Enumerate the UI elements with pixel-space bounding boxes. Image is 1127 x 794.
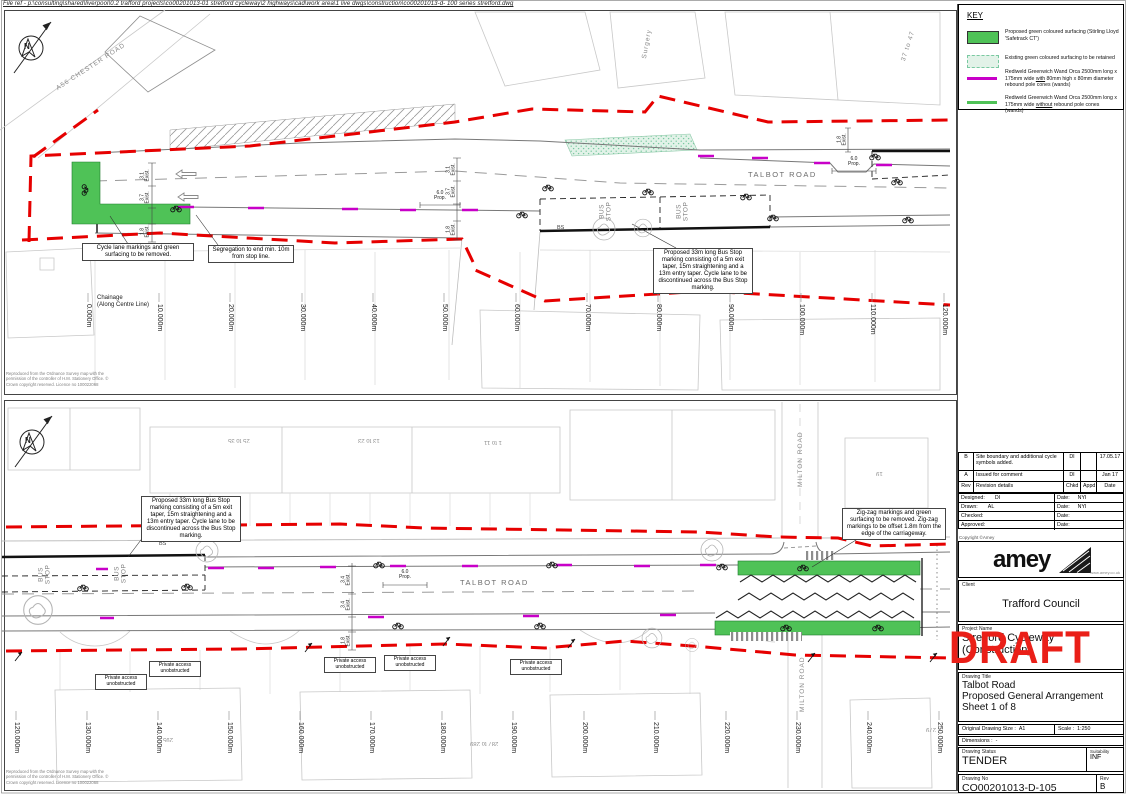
- building-label: 13 to 23: [358, 437, 380, 443]
- chainage-label: 230.000m: [794, 722, 801, 753]
- key-item-label: Existing green coloured surfacing to be …: [1005, 55, 1119, 62]
- road-label-talbot-top: TALBOT ROAD: [748, 170, 817, 179]
- date-value: NYI: [1078, 504, 1087, 510]
- rev-appd: [1081, 471, 1097, 481]
- chainage-label: 0.000m: [85, 304, 92, 327]
- cycle-symbols-top: [82, 154, 913, 223]
- chainage-label: 130.000m: [84, 722, 91, 753]
- rev-id: B: [959, 453, 974, 470]
- key-swatch-existing-green: [967, 55, 999, 68]
- bus-stop-text: BUSSTOP: [114, 558, 129, 588]
- amey-copyright: Copyright ©Amey: [959, 535, 994, 540]
- chainage-label: 250.000m: [936, 722, 943, 753]
- dimensions-row: Dimensions : -: [958, 736, 1124, 746]
- north-arrow-bottom: [15, 416, 52, 467]
- tree: [196, 540, 218, 562]
- rev-details: Issued for comment: [974, 471, 1064, 481]
- panel-top-road-lines: [95, 139, 950, 238]
- building-label: 19: [876, 470, 883, 476]
- key-swatch-wand-with-cones: [967, 77, 997, 80]
- chainage-label: 80.000m: [655, 304, 662, 331]
- road-label-milton-lower: MILTON ROAD: [799, 656, 806, 712]
- bus-stop-text: BUSSTOP: [599, 196, 614, 226]
- rev-details: Site boundary and additional cycle symbo…: [974, 453, 1064, 470]
- chainage-label: 50.000m: [441, 304, 448, 331]
- amey-logo-box: amey www.amey.co.uk: [958, 541, 1124, 578]
- rev-chkd: DI: [1064, 453, 1081, 470]
- rev-appd: [1081, 453, 1097, 470]
- rev-header: Revision details: [974, 482, 1064, 492]
- dimension: 1.8Exist.: [447, 216, 458, 242]
- leader-lines-top: [110, 215, 676, 248]
- key-swatch-wand-without-cones: [967, 101, 997, 104]
- amey-url: www.amey.co.uk: [1090, 570, 1120, 575]
- signoff-table: Designed:DI Date:NYI Drawn:AL Date:NYI C…: [958, 493, 1124, 529]
- chainage-label: 10.000m: [156, 304, 163, 331]
- dimension: 6.0Prop.: [841, 157, 867, 168]
- drawing-title-line1: Talbot Road: [959, 680, 1123, 691]
- designed-value: DI: [995, 495, 1000, 501]
- date-label: Date:: [1057, 504, 1070, 510]
- key-item-label: Proposed green coloured surfacing (Stirl…: [1005, 29, 1119, 42]
- building-label: 287 to 289: [470, 740, 498, 746]
- annotation-private-access: Private access unobstructed: [510, 659, 562, 675]
- os-copyright-bottom: Reproduced from the Ordnance Survey map …: [6, 769, 114, 785]
- dimension: 1.8Exist.: [141, 218, 152, 244]
- drawing-title-box: Drawing Title Talbot Road Proposed Gener…: [958, 672, 1124, 722]
- client-name: Trafford Council: [959, 598, 1123, 610]
- north-letter: N: [24, 42, 30, 51]
- dimension: 3.4Exist.: [342, 591, 353, 617]
- drawing-number-box: Drawing No CO00201013-D-105 Rev B: [958, 774, 1124, 793]
- chainage-label: 60.000m: [513, 304, 520, 331]
- key-item-label: Rediweld Greenwich Wand Orca 2500mm long…: [1005, 69, 1119, 89]
- dimension: 6.0Prop.: [427, 191, 453, 202]
- chainage-label: 200.000m: [581, 722, 588, 753]
- dimensions-label: Dimensions :: [962, 738, 993, 744]
- chainage-label: 160.000m: [297, 722, 304, 753]
- annotation-bus-stop-bottom: Proposed 33m long Bus Stop marking consi…: [141, 496, 241, 542]
- chainage-label: 220.000m: [723, 722, 730, 753]
- building-label: 25 to 35: [228, 437, 250, 443]
- chainage-label: 180.000m: [439, 722, 446, 753]
- draft-stamp: DRAFT: [949, 622, 1091, 674]
- key-swatch-proposed-green: [967, 31, 999, 44]
- chainage-title: Chainage(Along Centre Line): [97, 295, 149, 309]
- tree: [24, 596, 53, 625]
- bottom-panel-border: [5, 401, 957, 791]
- rev-header: Rev: [959, 482, 974, 492]
- chainage-label: 240.000m: [865, 722, 872, 753]
- zigzag-markings: [716, 575, 916, 618]
- proposed-green-surfacing-area: [72, 162, 190, 224]
- drawing-no-value: CO00201013-D-105: [959, 782, 1096, 794]
- dimension: 3.4Exist.: [342, 566, 353, 592]
- chainage-ticks-top: [88, 293, 944, 302]
- chainage-label: 100.000m: [798, 304, 805, 335]
- annotation-zigzag: Zig-zag markings and green surfacing to …: [842, 508, 946, 540]
- size-scale-row: Original Drawing Size : A1 Scale : 1:250: [958, 724, 1124, 735]
- tree: [701, 539, 723, 561]
- date-value: NYI: [1078, 495, 1087, 501]
- size-value: A1: [1019, 726, 1025, 732]
- bus-stop-marking-bottom: [2, 555, 205, 592]
- annotation-private-access: Private access unobstructed: [95, 674, 147, 690]
- annotation-private-access: Private access unobstructed: [149, 661, 201, 677]
- annotation-private-access: Private access unobstructed: [384, 655, 436, 671]
- rev-header: Appd: [1081, 482, 1097, 492]
- scale-value: 1:250: [1077, 726, 1090, 732]
- road-label-talbot-bottom: TALBOT ROAD: [460, 578, 529, 587]
- status-value: TENDER: [959, 755, 1086, 767]
- annotation-private-access: Private access unobstructed: [324, 657, 376, 673]
- dimension: 6.0Prop.: [392, 570, 418, 581]
- rev-id: A: [959, 471, 974, 481]
- chainage-label: 20.000m: [227, 304, 234, 331]
- status-box: Drawing Status TENDER Suitability INF: [958, 747, 1124, 772]
- drawing-no-label: Drawing No: [959, 775, 1096, 782]
- rev-header: Chkd: [1064, 482, 1081, 492]
- key-title: KEY: [967, 11, 983, 20]
- dimension: 1.8Exist.: [342, 627, 353, 653]
- dimension: 1.8Exist.: [838, 126, 849, 152]
- os-copyright-top: Reproduced from the Ordnance Survey map …: [6, 371, 114, 387]
- chainage-label: 70.000m: [584, 304, 591, 331]
- checked-label: Checked:: [961, 513, 983, 519]
- tree: [642, 628, 662, 648]
- building-label: 1 to 11: [484, 439, 502, 445]
- proposed-green-surfacing-area: [738, 561, 920, 575]
- bs-marker: BS: [557, 225, 564, 231]
- client-label: Client: [959, 581, 1123, 588]
- drawn-value: AL: [988, 504, 994, 510]
- date-label: Date:: [1057, 495, 1070, 501]
- drawn-label: Drawn:: [961, 504, 978, 510]
- chainage-label: 150.000m: [226, 722, 233, 753]
- north-arrow-top: [14, 22, 51, 73]
- annotation-segregation: Segregation to end min. 10m from stop li…: [208, 245, 294, 263]
- bus-stop-text: BUSSTOP: [38, 559, 53, 589]
- crossing-ladder-marking: [806, 551, 834, 560]
- bus-stop-text: BUSSTOP: [676, 196, 691, 226]
- drawing-title-label: Drawing Title: [959, 673, 1123, 680]
- date-label: Date:: [1057, 513, 1070, 519]
- annotation-cycle-lane-removal: Cycle lane markings and green surfacing …: [82, 243, 194, 261]
- revision-table: B Site boundary and additional cycle sym…: [958, 452, 1124, 493]
- chainage-ticks-bottom: [16, 711, 939, 720]
- rev-header: Date: [1097, 482, 1123, 492]
- key-item-label: Rediweld Greenwich Wand Orca 2500mm long…: [1005, 95, 1119, 115]
- rev-date: Jan 17: [1097, 471, 1123, 481]
- chainage-label: 190.000m: [510, 722, 517, 753]
- suitability-value: INF: [1087, 754, 1123, 761]
- amey-logo-swoosh-icon: [1057, 545, 1093, 575]
- site-boundary-top: [22, 96, 950, 305]
- client-box: Client Trafford Council: [958, 580, 1124, 622]
- road-label-milton-upper: MILTON ROAD: [797, 431, 804, 487]
- chainage-label: 30.000m: [299, 304, 306, 331]
- dimension: 3.7Exist.: [141, 184, 152, 210]
- date-label: Date:: [1057, 522, 1070, 528]
- chainage-label: 90.000m: [727, 304, 734, 331]
- file-reference: File ref - p:\consulting\shared\liverpoo…: [3, 1, 513, 7]
- rev-label: Rev: [1097, 775, 1123, 782]
- chainage-label: 40.000m: [370, 304, 377, 331]
- building-label: 295: [163, 736, 173, 742]
- rev-chkd: DI: [1064, 471, 1081, 481]
- chainage-label: 120.000m: [941, 304, 948, 335]
- lane-arrow: [176, 170, 196, 178]
- lane-arrow: [178, 193, 198, 201]
- existing-green-surfacing-area: [565, 134, 697, 156]
- building-label: 279: [926, 726, 936, 732]
- approved-label: Approved:: [961, 522, 985, 528]
- amey-logo: amey: [993, 546, 1050, 574]
- key-legend: KEY Proposed green coloured surfacing (S…: [958, 4, 1124, 110]
- scale-label: Scale :: [1058, 726, 1074, 732]
- drawing-title-line2: Proposed General Arrangement: [959, 691, 1123, 702]
- chainage-label: 120.000m: [13, 722, 20, 753]
- chainage-label: 110.000m: [869, 304, 876, 335]
- status-label: Drawing Status: [959, 748, 1086, 755]
- wand-markings-top: [178, 156, 892, 210]
- chainage-label: 140.000m: [155, 722, 162, 753]
- crossing-ladder-marking: [730, 632, 802, 641]
- designed-label: Designed:: [961, 495, 985, 501]
- north-letter: N: [25, 436, 31, 445]
- annotation-bus-stop-top: Proposed 33m long Bus Stop marking consi…: [653, 248, 753, 294]
- chainage-label: 210.000m: [652, 722, 659, 753]
- dimensions-value: -: [996, 738, 998, 744]
- size-label: Original Drawing Size :: [962, 726, 1016, 732]
- drawing-title-line3: Sheet 1 of 8: [959, 702, 1123, 713]
- rev-value: B: [1097, 782, 1123, 791]
- drawing-sheet: File ref - p:\consulting\shared\liverpoo…: [0, 0, 1127, 794]
- rev-date: 17.05.17: [1097, 453, 1123, 470]
- chainage-label: 170.000m: [368, 722, 375, 753]
